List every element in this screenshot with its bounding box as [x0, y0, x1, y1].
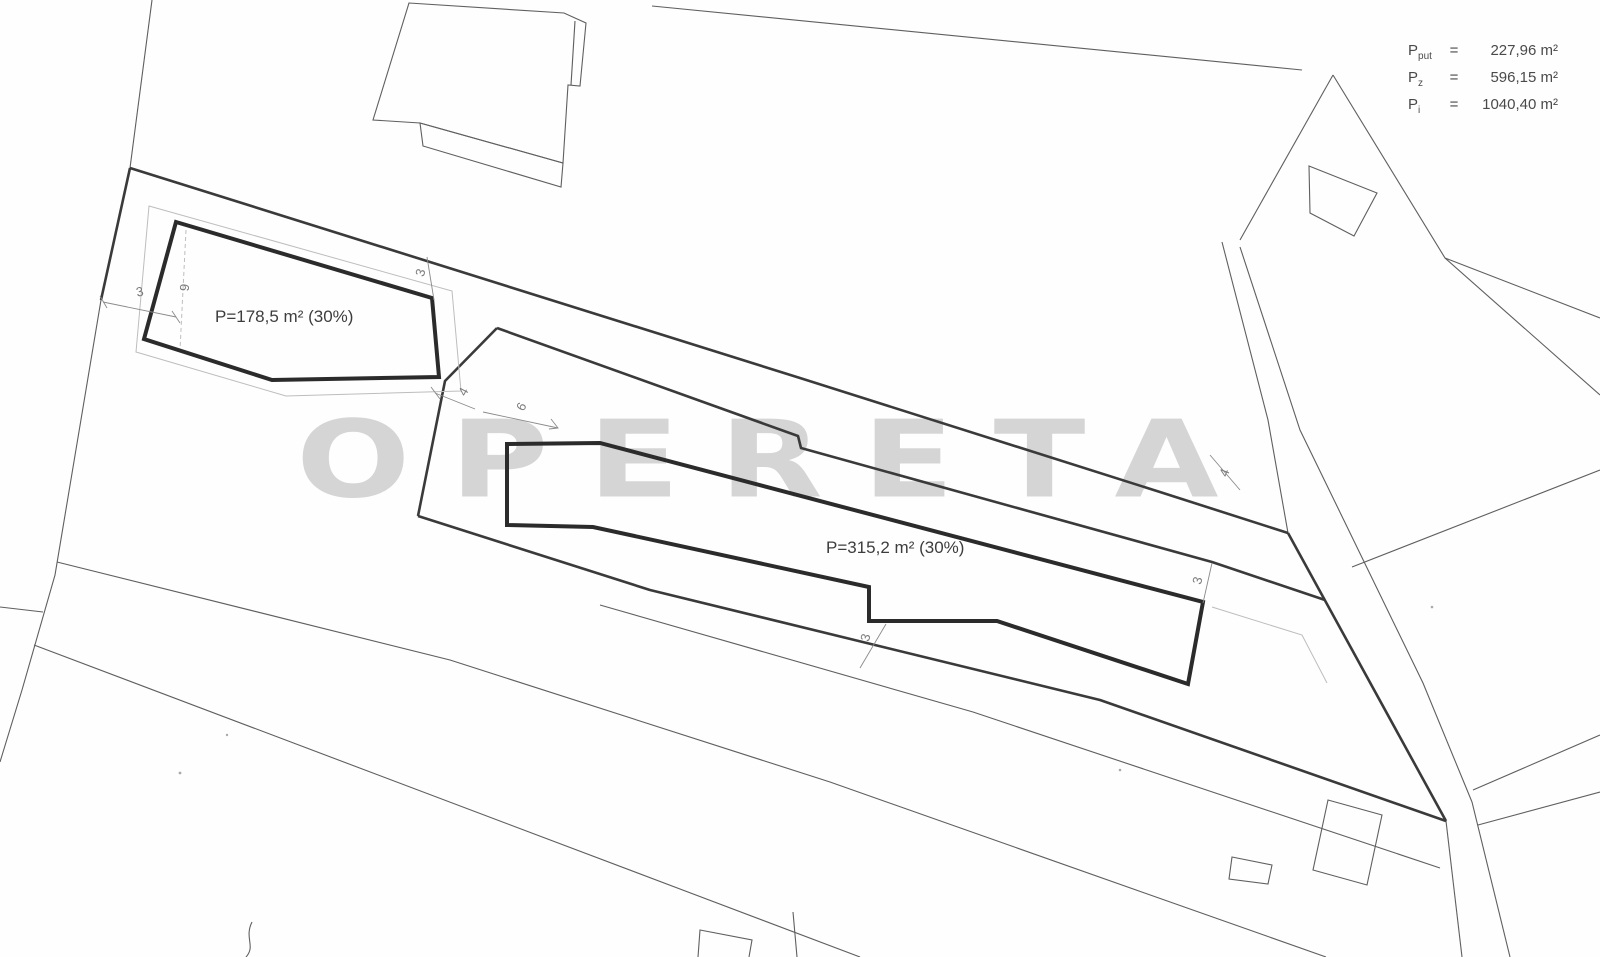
bottom-vertical-line: [793, 912, 797, 957]
scan-specks: [179, 606, 1434, 775]
legend-equals: =: [1446, 94, 1462, 121]
north-terrain-line: [652, 6, 1302, 70]
building2-setback-outline: [1212, 607, 1327, 683]
scan-speck: [1431, 606, 1434, 609]
south-parcel-line-2: [34, 645, 860, 957]
south-parcel-line-3: [600, 605, 1440, 868]
small-building-outline-1: [1313, 800, 1382, 885]
building2-area-label: P=315,2 m² (30%): [826, 538, 964, 558]
legend-value: 596,15 m²: [1462, 67, 1558, 94]
neighbour-building-outline: [373, 3, 586, 163]
road-east-line: [1240, 247, 1472, 802]
south-parcel-line-1: [57, 562, 1326, 957]
road-west-line: [1222, 242, 1288, 533]
small-building-outline-2: [1229, 857, 1272, 884]
dim-label-3-building1: 3: [412, 267, 429, 279]
scan-speck: [179, 772, 182, 775]
parcel-boundaries: [101, 168, 1446, 821]
legend-value: 227,96 m²: [1462, 40, 1558, 67]
building1-setback-outline: [136, 206, 461, 396]
parcel-boundary-inner-jogged: [497, 328, 1325, 600]
east-parcel-line-2: [1478, 792, 1600, 825]
building-footprints: [144, 222, 1203, 684]
legend-symbol: Pz: [1408, 67, 1446, 94]
dim-label-3-west: 3: [135, 283, 145, 299]
dim-label-4-road: 4: [1216, 466, 1233, 478]
peak-left-flank-line: [1240, 75, 1333, 240]
west-boundary-lower-line: [0, 300, 101, 762]
legend-row-pz: Pz = 596,15 m²: [1408, 67, 1558, 94]
neighbour-building-notch-line: [571, 21, 575, 85]
plan-drawing: 3 9 3 4 6 4 3 3: [0, 0, 1600, 957]
building1-area-label: P=178,5 m² (30%): [215, 307, 353, 327]
dim-tick: [431, 387, 440, 399]
dim-label-6: 6: [513, 400, 530, 413]
scan-speck: [226, 734, 228, 736]
area-legend: Pput = 227,96 m² Pz = 596,15 m² Pi = 104…: [1408, 40, 1558, 121]
east-parcel-line-1: [1473, 735, 1600, 790]
road-south-east-line: [1472, 802, 1510, 957]
cadastral-lines: [0, 0, 1600, 957]
dim-line-6: [483, 412, 558, 428]
west-boundary-upper-line: [130, 0, 152, 168]
legend-symbol: Pput: [1408, 40, 1446, 67]
road-south-west-line: [1446, 821, 1462, 957]
parcel-boundary-northeast: [1288, 533, 1446, 821]
dim-label-3-building2-east: 3: [1189, 575, 1205, 586]
dim-label-4: 4: [455, 385, 472, 398]
site-plan-scan: OPERETA: [0, 0, 1600, 957]
scan-speck: [1119, 769, 1122, 772]
legend-row-pput: Pput = 227,96 m²: [1408, 40, 1558, 67]
peak-right-flank-line: [1333, 75, 1600, 395]
legend-symbol: Pi: [1408, 94, 1446, 121]
dim-tick: [172, 311, 180, 323]
neighbour-building-strip: [420, 123, 563, 187]
east-parcel-line-3: [1352, 470, 1600, 567]
northeast-branch-line: [1445, 258, 1600, 318]
parcel-boundary-south: [418, 516, 1446, 821]
left-edge-connector-line: [0, 607, 43, 612]
building2-footprint: [507, 443, 1203, 684]
legend-value: 1040,40 m²: [1462, 94, 1558, 121]
bottom-building-outline: [698, 930, 752, 957]
dim-label-9: 9: [177, 283, 193, 292]
parcel-boundary-north: [130, 168, 1288, 533]
legend-row-pi: Pi = 1040,40 m²: [1408, 94, 1558, 121]
small-diamond-parcel: [1309, 166, 1377, 236]
legend-equals: =: [1446, 67, 1462, 94]
parcel-boundary-west: [101, 168, 130, 300]
setback-lines: [136, 206, 1327, 683]
legend-equals: =: [1446, 40, 1462, 67]
handwritten-mark: [246, 922, 252, 957]
